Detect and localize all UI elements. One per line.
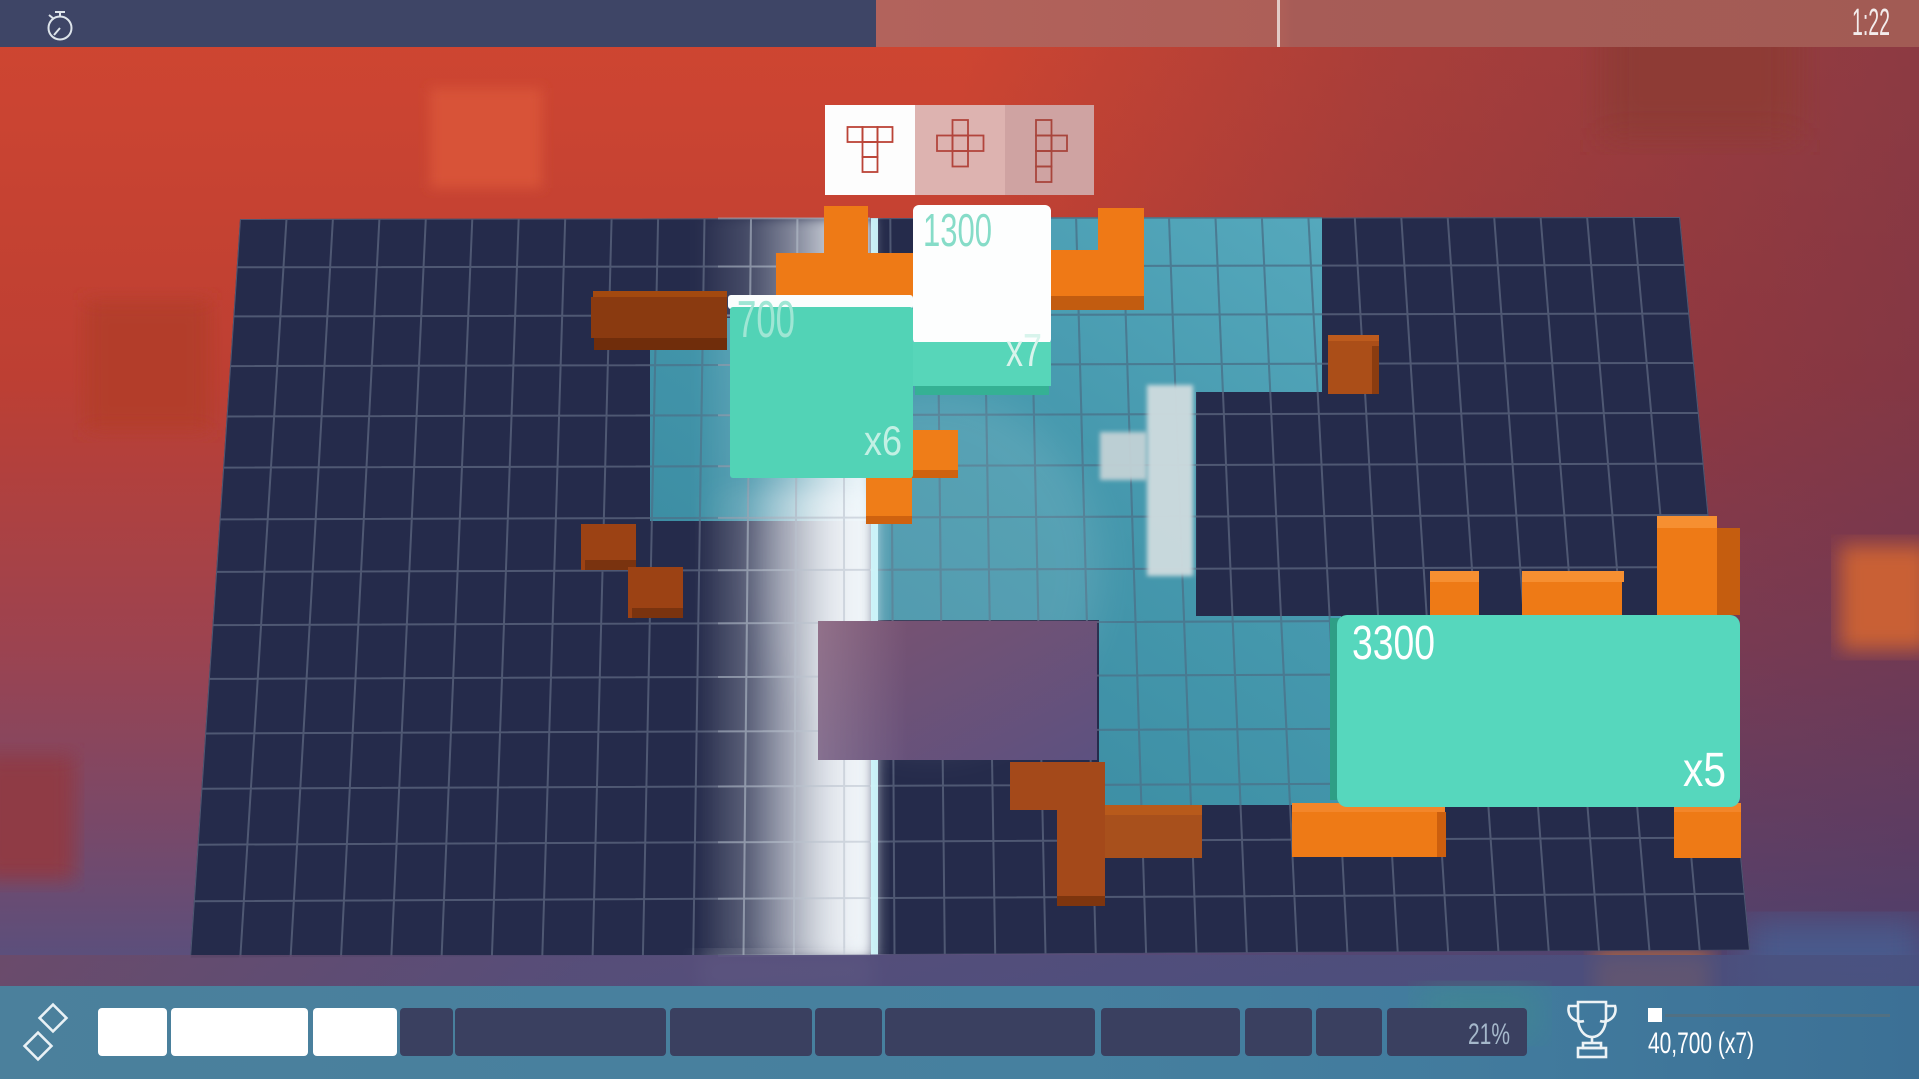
svg-text:1300: 1300 (923, 204, 992, 256)
svg-text:x7: x7 (1006, 324, 1042, 376)
svg-text:x6: x6 (864, 417, 902, 464)
svg-text:1:22: 1:22 (1852, 2, 1890, 44)
svg-text:21%: 21% (1468, 1018, 1510, 1051)
svg-text:40,700 (x7): 40,700 (x7) (1648, 1027, 1754, 1060)
svg-text:x5: x5 (1683, 744, 1726, 797)
svg-text:700: 700 (737, 291, 795, 349)
svg-text:3300: 3300 (1352, 617, 1435, 670)
